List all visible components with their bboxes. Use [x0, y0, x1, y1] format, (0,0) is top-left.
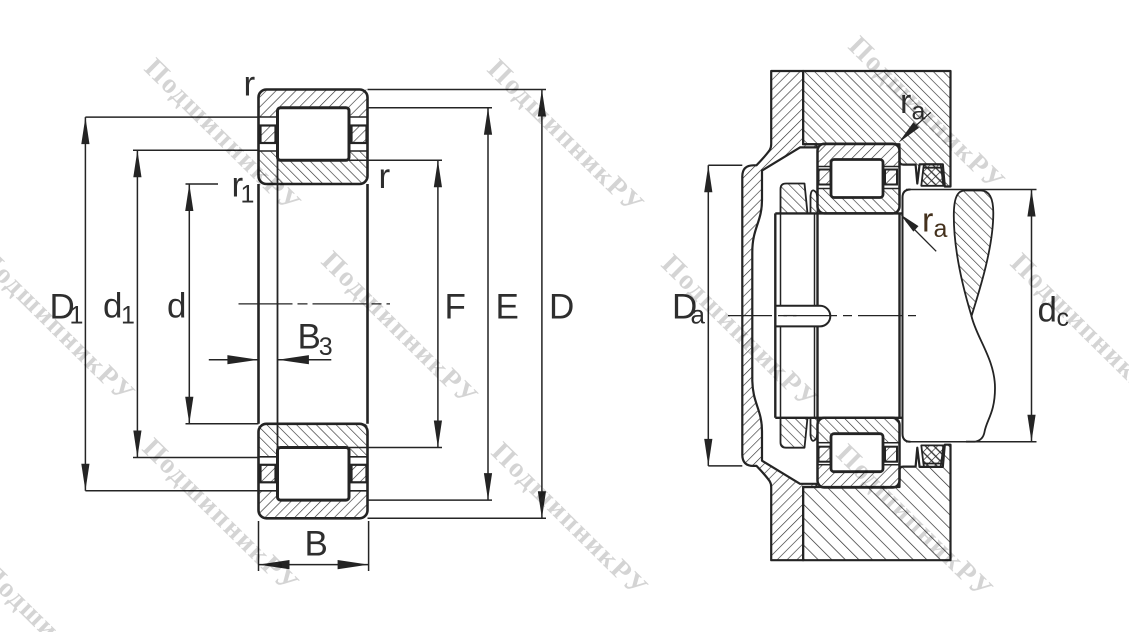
svg-text:F: F	[445, 287, 466, 326]
svg-text:E: E	[496, 287, 519, 326]
svg-text:d: d	[103, 287, 122, 326]
svg-text:B: B	[298, 318, 321, 357]
svg-text:B: B	[305, 525, 328, 564]
svg-text:D: D	[549, 287, 574, 326]
svg-text:d: d	[167, 287, 186, 326]
svg-text:r: r	[244, 65, 256, 104]
svg-text:r: r	[379, 157, 391, 196]
svg-text:a: a	[934, 215, 948, 243]
svg-text:3: 3	[319, 333, 333, 361]
svg-text:r: r	[922, 202, 933, 240]
svg-text:1: 1	[121, 302, 135, 330]
